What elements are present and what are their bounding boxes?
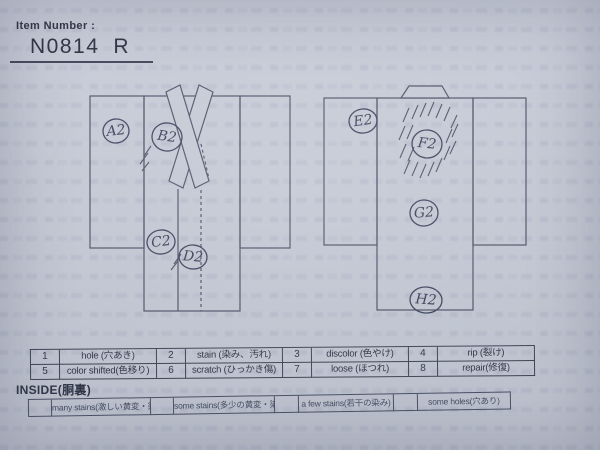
inside-option-label: many stains(激しい黄変・染み) [52, 398, 151, 417]
mark-label-g2: G2 [413, 204, 434, 221]
legend-term: scratch (ひっかき傷) [186, 363, 283, 379]
legend-term: repair(修復) [438, 361, 535, 377]
mark-label-h2: H2 [414, 291, 437, 309]
inside-check-cell [275, 396, 299, 413]
mark-label-d2: D2 [181, 248, 204, 266]
inside-check-cell [394, 394, 418, 411]
legend-term: color shifted(色移り) [60, 364, 157, 380]
legend-code: 7 [283, 363, 312, 378]
mark-label-a2: A2 [104, 122, 127, 140]
inside-option-label: some stains(多少の黄変・染み) [174, 396, 275, 415]
legend-term: stain (染み、汚れ) [186, 348, 283, 364]
back-collar [401, 86, 449, 98]
legend-code: 2 [157, 349, 186, 364]
legend-term: loose (ほつれ) [312, 362, 409, 378]
mark-label-c2: C2 [150, 233, 172, 251]
inside-check-cell [151, 398, 174, 415]
inside-section-title: INSIDE(胴裏) [16, 381, 91, 398]
front-right-sleeve [240, 96, 290, 248]
condition-legend-table: 1 hole (穴あき) 2 stain (染み、汚れ) 3 discolor … [30, 345, 535, 380]
legend-code: 4 [409, 347, 438, 362]
legend-term: hole (穴あき) [60, 349, 157, 365]
legend-code: 1 [31, 350, 60, 365]
mark-label-b2: B2 [155, 128, 177, 147]
legend-code: 3 [283, 348, 312, 363]
legend-term: rip (裂け) [438, 346, 535, 362]
legend-code: 5 [31, 365, 60, 380]
mark-label-f2: F2 [416, 135, 437, 153]
mark-label-e2: E2 [351, 112, 373, 131]
front-hatch-marks-b2 [140, 146, 151, 171]
legend-term: discolor (色やけ) [312, 347, 409, 363]
inside-check-cell [29, 400, 52, 417]
inside-option-label: some holes(穴あり) [418, 392, 511, 410]
legend-code: 6 [157, 364, 186, 379]
condition-sheet-photo: Item Number : N0814R [0, 0, 600, 450]
back-right-sleeve [473, 98, 526, 245]
legend-code: 8 [409, 362, 438, 377]
inside-option-label: a few stains(若干の染み) [299, 394, 394, 412]
